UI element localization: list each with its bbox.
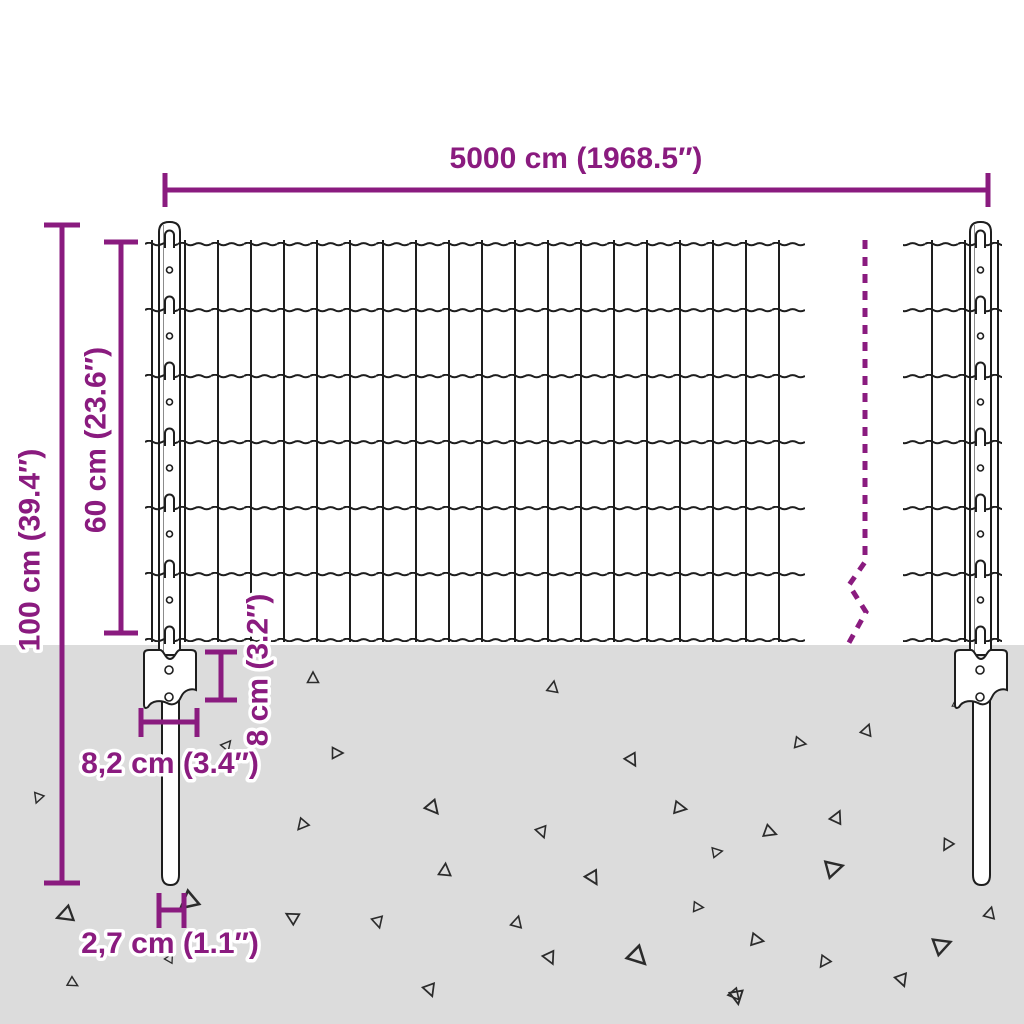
right-post-spike [973, 694, 990, 885]
diagram-canvas: 5000 cm (1968.5″) 100 cm (39.4″) 60 cm (… [0, 0, 1024, 1024]
total-width-label: 5000 cm (1968.5″) [450, 142, 703, 175]
post-diameter-label: 2,7 cm (1.1″) [81, 927, 259, 960]
anchor-width-label: 8,2 cm (3.4″) [81, 747, 259, 780]
mesh-panel-right [903, 240, 1002, 642]
anchor-height-label: 8 cm (3.2″) [242, 594, 275, 747]
total-height-label: 100 cm (39.4″) [14, 449, 47, 652]
mesh-panel-left [145, 240, 805, 642]
mesh-height-label: 60 cm (23.6″) [80, 347, 113, 533]
fence-dimension-diagram: 5000 cm (1968.5″) 100 cm (39.4″) 60 cm (… [0, 0, 1024, 1024]
